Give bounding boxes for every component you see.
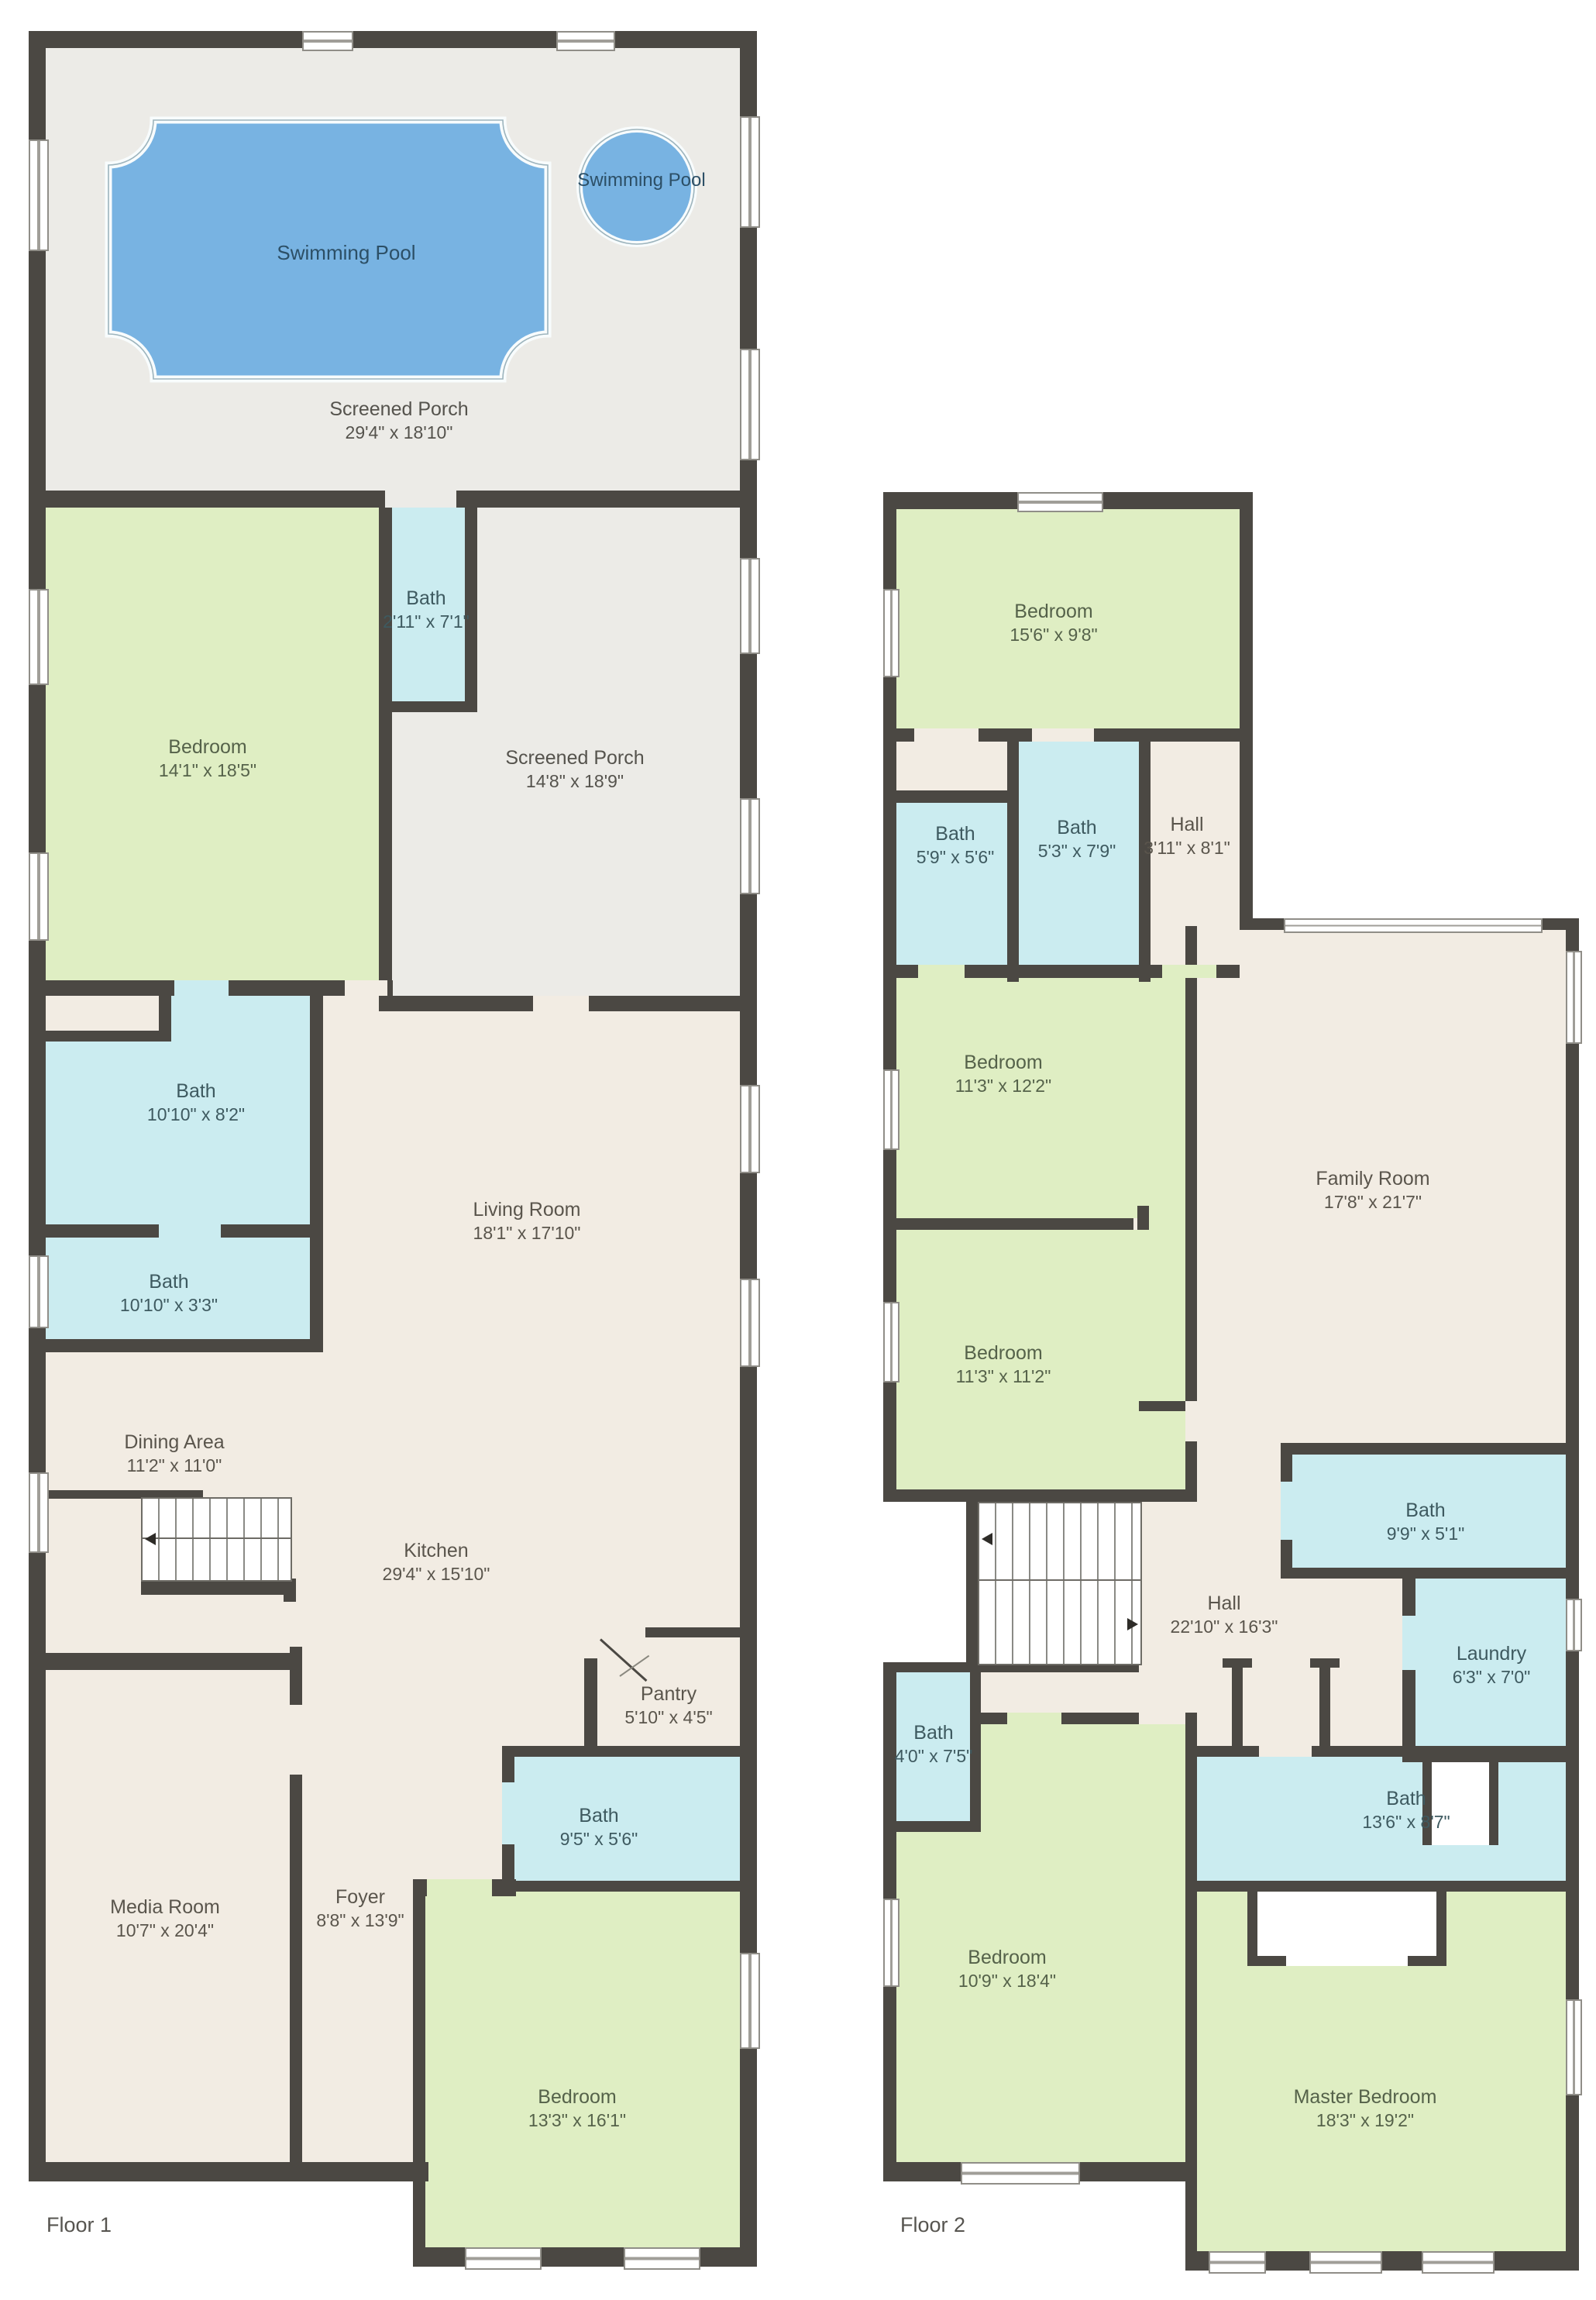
room-fill	[883, 2181, 1185, 2300]
window	[624, 2247, 700, 2270]
wall-segment	[883, 1489, 1185, 1502]
window	[29, 1472, 49, 1553]
wall-segment	[46, 1031, 171, 1042]
room-label-living-room: Living Room18'1" x 17'10"	[473, 1197, 581, 1245]
door-opening	[1259, 1746, 1312, 1757]
stair-down-arrow	[1127, 1618, 1138, 1630]
door-opening	[1032, 728, 1094, 742]
room-label-bath-f1-small: Bath2'11" x 7'1"	[383, 586, 470, 633]
window	[883, 1899, 899, 1987]
wall-segment	[1281, 1443, 1567, 1455]
room-fill	[425, 1891, 740, 2251]
wall-segment	[29, 1339, 323, 1352]
wall-segment	[379, 508, 392, 996]
door-opening	[1185, 1401, 1197, 1441]
window	[740, 116, 760, 228]
wall-segment	[1310, 1658, 1340, 1668]
room-label-laundry: Laundry6'3" x 7'0"	[1453, 1641, 1531, 1689]
room-fill	[1257, 1892, 1436, 1966]
window	[1017, 492, 1103, 512]
room-fill	[46, 996, 159, 1031]
stair-direction-arrow	[145, 1533, 156, 1545]
door-opening	[502, 1782, 514, 1844]
wall-segment	[1185, 926, 1197, 1401]
window	[883, 1302, 899, 1382]
room-label-bath-f2-1: Bath5'9" x 5'6"	[917, 821, 995, 869]
window	[740, 349, 760, 460]
room-label-bedroom-f1-bottom: Bedroom13'3" x 16'1"	[528, 2085, 626, 2132]
wall-segment	[896, 790, 1007, 803]
wall-segment	[1007, 728, 1019, 982]
room-fill	[1197, 926, 1566, 978]
room-label-bedroom-f2-1: Bedroom11'3" x 12'2"	[955, 1050, 1051, 1097]
window	[1566, 1999, 1582, 2095]
wall-segment	[1436, 1892, 1446, 1966]
wall-segment	[1402, 1579, 1415, 1762]
window	[883, 1069, 899, 1150]
door-opening	[533, 996, 589, 1011]
wall-segment	[1197, 1746, 1566, 1757]
stairs-floor1	[141, 1497, 292, 1582]
window	[1566, 951, 1582, 1044]
stair-rail-line	[143, 1537, 291, 1539]
wall-segment	[1247, 1892, 1257, 1966]
door-opening	[1007, 1713, 1061, 1724]
room-label-pantry: Pantry5'10" x 4'5"	[624, 1682, 712, 1729]
room-label-foyer: Foyer8'8" x 13'9"	[316, 1885, 404, 1932]
wall-segment	[1232, 1658, 1243, 1746]
wall-segment	[29, 31, 46, 2179]
room-label-media-room: Media Room10'7" x 20'4"	[110, 1895, 220, 1942]
stair-up-arrow	[982, 1533, 992, 1545]
wall-segment	[1185, 1441, 1197, 1502]
spa-label: Swimming Pool	[577, 169, 705, 193]
wall-segment	[1489, 1761, 1498, 1845]
room-label-kitchen: Kitchen29'4" x 15'10"	[383, 1538, 490, 1586]
room-fill	[896, 1502, 966, 1662]
room-label-bath-f2-2: Bath5'3" x 7'9"	[1038, 815, 1116, 862]
window	[29, 139, 49, 251]
wall-segment	[1137, 1206, 1149, 1230]
room-label-bath-f2-5: Bath13'6" x 8'7"	[1362, 1786, 1450, 1833]
wall-segment	[1281, 1568, 1567, 1579]
room-label-bath-f2-4: Bath4'0" x 7'5"	[895, 1720, 973, 1768]
window	[556, 31, 615, 51]
door-opening	[914, 728, 979, 742]
wall-segment	[392, 701, 477, 712]
floor-plan-canvas: Screened Porch29'4" x 18'10" Swimming Po…	[0, 0, 1596, 2300]
wall-segment	[29, 1653, 302, 1670]
wall-segment	[883, 1821, 981, 1832]
room-label-bedroom-f2-2: Bedroom11'3" x 11'2"	[956, 1341, 1051, 1388]
stair-rail-line	[979, 1579, 1140, 1581]
window	[1309, 2251, 1382, 2274]
wall-segment	[290, 1647, 302, 1670]
wall-segment	[966, 1502, 978, 1662]
wall-segment	[896, 1218, 1133, 1230]
wall-segment	[1223, 1658, 1252, 1668]
door-opening	[1162, 965, 1216, 978]
room-label-bath-f1-3: Bath9'5" x 5'6"	[560, 1803, 638, 1851]
room-label-bedroom-f2-3: Bedroom10'9" x 18'4"	[958, 1945, 1056, 1992]
wall-segment	[1408, 1956, 1446, 1966]
floor2-title: Floor 2	[900, 2213, 965, 2237]
door-opening	[385, 491, 456, 508]
room-label-family-room: Family Room17'8" x 21'7"	[1316, 1166, 1429, 1214]
window	[1566, 1599, 1582, 1651]
window	[1422, 2251, 1495, 2274]
door-opening	[1149, 1218, 1185, 1230]
window	[740, 1085, 760, 1173]
wall-segment	[502, 1746, 744, 1757]
wall-segment	[1240, 492, 1253, 926]
room-label-master-bedroom: Master Bedroom18'3" x 19'2"	[1294, 2085, 1437, 2132]
window	[961, 2162, 1080, 2185]
stairs-floor2	[978, 1502, 1142, 1665]
wall-segment	[1139, 742, 1151, 982]
window	[740, 1953, 760, 2049]
window	[740, 558, 760, 654]
pool-label: Swimming Pool	[277, 240, 415, 266]
room-fill	[392, 712, 477, 996]
window	[302, 31, 353, 51]
window	[29, 589, 49, 685]
room-label-dining-area: Dining Area11'2" x 11'0"	[124, 1430, 224, 1477]
room-label-bedroom-f2-top: Bedroom15'6" x 9'8"	[1010, 599, 1097, 646]
door-opening	[345, 980, 387, 996]
door-opening	[1402, 1616, 1415, 1670]
wall-segment	[645, 1627, 757, 1637]
wall-segment	[502, 1881, 744, 1892]
wall-segment	[584, 1658, 597, 1746]
room-label-hall-main: Hall22'10" x 16'3"	[1171, 1591, 1278, 1638]
floor1-title: Floor 1	[46, 2213, 112, 2237]
window	[29, 852, 49, 941]
room-fill	[896, 978, 1185, 1218]
window	[883, 589, 899, 677]
wall-segment	[413, 1879, 425, 2267]
room-label-hall-upper: Hall3'11" x 8'1"	[1144, 812, 1230, 859]
room-label-bath-f1-2: Bath10'10" x 3'3"	[120, 1269, 218, 1317]
room-label-bath-f1-1: Bath10'10" x 8'2"	[147, 1079, 245, 1126]
door-opening	[159, 1224, 221, 1238]
wall-segment	[1247, 1956, 1286, 1966]
window	[740, 798, 760, 894]
door-opening	[918, 965, 965, 978]
wall-segment	[29, 2162, 428, 2181]
window	[465, 2247, 542, 2270]
door-opening	[174, 980, 229, 996]
wall-segment	[1185, 1713, 1197, 2271]
door-opening	[290, 1705, 302, 1775]
window	[29, 1255, 49, 1328]
room-label-bath-f2-3: Bath9'9" x 5'1"	[1387, 1498, 1465, 1545]
room-label-screened-porch-pool: Screened Porch29'4" x 18'10"	[329, 397, 468, 444]
wall-segment	[284, 1579, 296, 1602]
window	[740, 1279, 760, 1367]
door-opening	[427, 1879, 492, 1896]
wall-segment	[1197, 1881, 1566, 1892]
wall-segment	[1319, 1658, 1330, 1746]
window	[1284, 918, 1543, 933]
door-opening	[1281, 1482, 1292, 1540]
wall-segment	[29, 31, 757, 48]
room-label-bedroom-f1-top: Bedroom14'1" x 18'5"	[159, 735, 256, 782]
window	[1209, 2251, 1266, 2274]
wall-segment	[310, 996, 323, 1352]
room-label-screened-porch-2: Screened Porch14'8" x 18'9"	[505, 745, 644, 793]
